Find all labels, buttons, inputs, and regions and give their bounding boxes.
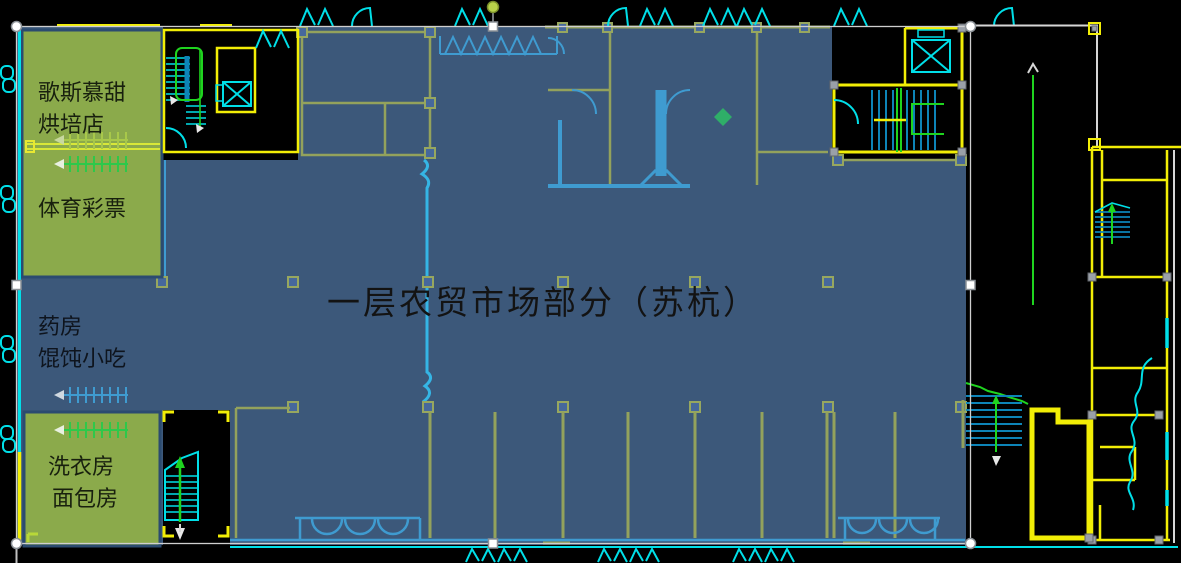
- highlight-box-laundry-bakery[interactable]: 洗衣房 面包房: [24, 412, 160, 546]
- title-text[interactable]: 一层农贸市场部分（苏杭）: [327, 285, 759, 322]
- rotate-handle[interactable]: [488, 2, 499, 13]
- selection-handle-s[interactable]: [489, 539, 498, 548]
- floor-plan-canvas: 歌斯慕甜 烘培店 体育彩票 洗衣房 面包房 药房 馄饨小吃 一层农贸市场部分（苏…: [0, 0, 1181, 563]
- label-bakery-shop-line1[interactable]: 歌斯慕甜: [38, 80, 126, 105]
- selection-handle-w[interactable]: [12, 281, 21, 290]
- selection-handle-e[interactable]: [966, 281, 975, 290]
- selection-handle-nw[interactable]: [12, 22, 22, 32]
- selection-handle-ne[interactable]: [966, 22, 976, 32]
- label-pharmacy[interactable]: 药房: [38, 314, 82, 339]
- highlight-box-bakery-lottery[interactable]: 歌斯慕甜 烘培店 体育彩票: [22, 30, 162, 277]
- label-sports-lottery[interactable]: 体育彩票: [38, 196, 126, 221]
- selection-handle-sw[interactable]: [12, 539, 22, 549]
- selection-handle-n[interactable]: [489, 22, 498, 31]
- selection-handle-se[interactable]: [966, 539, 976, 549]
- label-bakery-shop-line2[interactable]: 烘培店: [38, 112, 104, 137]
- label-laundry-room[interactable]: 洗衣房: [48, 454, 114, 479]
- label-wonton-snack[interactable]: 馄饨小吃: [38, 346, 126, 371]
- label-bread-shop[interactable]: 面包房: [52, 486, 118, 511]
- cad-floorplan-screenshot: 歌斯慕甜 烘培店 体育彩票 洗衣房 面包房 药房 馄饨小吃 一层农贸市场部分（苏…: [0, 0, 1181, 563]
